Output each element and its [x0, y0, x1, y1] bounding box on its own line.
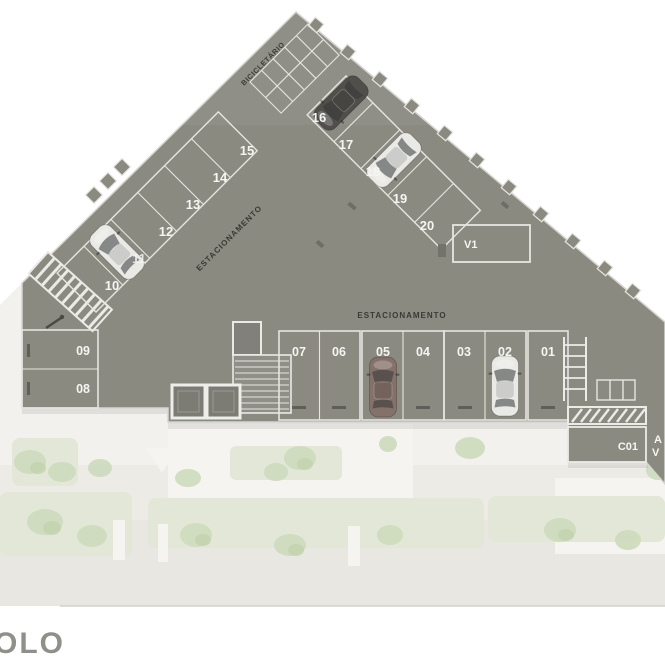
stall-label-16: 16 [312, 110, 326, 125]
stall-label-19: 19 [393, 191, 407, 206]
elevators [172, 385, 240, 418]
floor-plan-svg: BICICLETÁRIO 10 11 12 13 14 15 16 17 18 … [0, 0, 665, 665]
stall-label-02: 02 [498, 345, 512, 359]
car-stall-02 [489, 356, 522, 416]
c01-label: C01 [618, 441, 638, 453]
stall-label-12: 12 [159, 224, 173, 239]
stall-label-11: 11 [132, 251, 146, 266]
svg-text:A: A [654, 434, 662, 446]
car-stall-05 [367, 357, 400, 417]
stall-label-18: 18 [366, 164, 380, 179]
door-mark [438, 244, 446, 257]
plan-caption-partial: OLO [0, 627, 65, 660]
stall-label-14: 14 [213, 170, 228, 185]
stall-label-09: 09 [76, 344, 90, 358]
svg-text:V: V [652, 447, 660, 459]
stall-label-01: 01 [541, 345, 555, 359]
stall-label-06: 06 [332, 345, 346, 359]
stall-label-13: 13 [186, 197, 200, 212]
stall-label-08: 08 [76, 382, 90, 396]
stall-label-17: 17 [339, 137, 353, 152]
stall-label-15: 15 [240, 143, 254, 158]
stall-label-05: 05 [376, 345, 390, 359]
deck-light-tint [170, 12, 430, 125]
stall-label-03: 03 [457, 345, 471, 359]
v1-label: V1 [464, 239, 477, 251]
floor-plan-page: BICICLETÁRIO 10 11 12 13 14 15 16 17 18 … [0, 0, 665, 665]
stall-label-20: 20 [420, 218, 434, 233]
stall-label-10: 10 [105, 278, 119, 293]
c01-room: C01 [568, 427, 646, 462]
stall-label-04: 04 [416, 345, 430, 359]
parking-label-horizontal: ESTACIONAMENTO [357, 311, 446, 320]
stall-label-07: 07 [292, 345, 306, 359]
